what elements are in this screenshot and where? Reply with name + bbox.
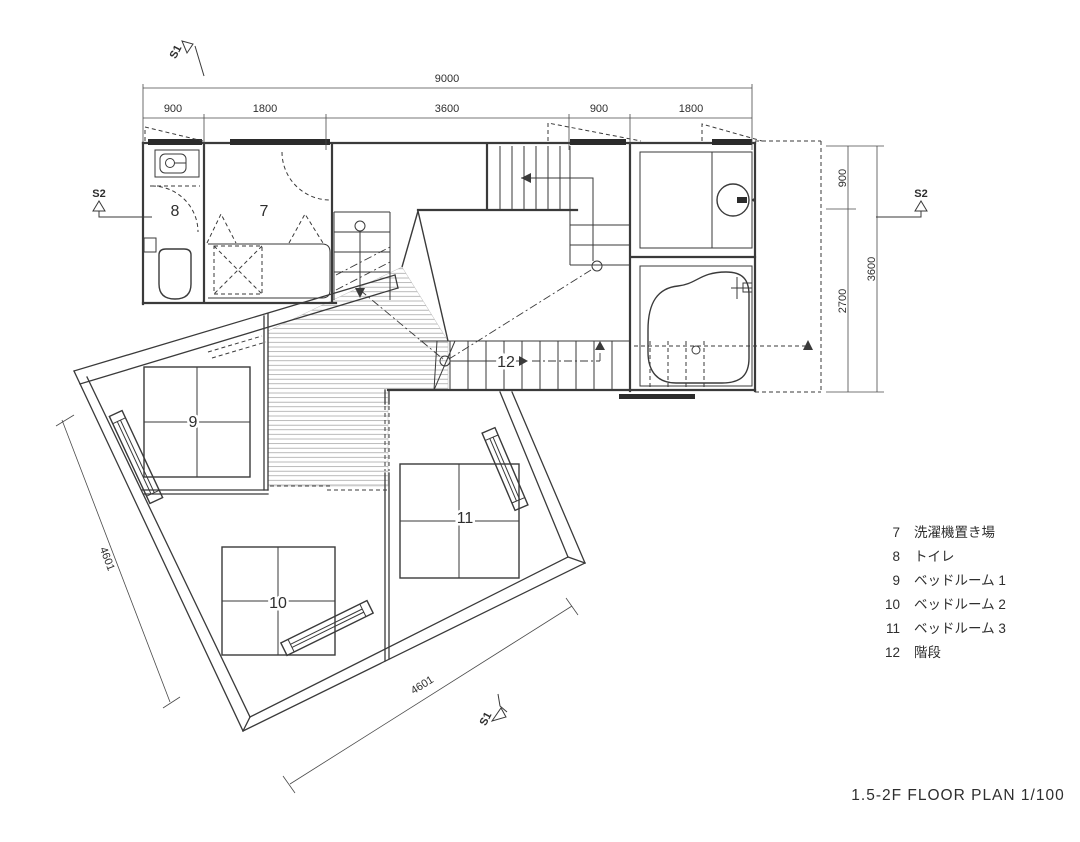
- counter: [208, 244, 330, 298]
- floor-plan-drawing: 7 8 9 10 11 12 9000 900 1800 3600 900 18…: [0, 0, 1080, 842]
- legend-label: 階段: [914, 645, 941, 660]
- dimension-bottom: 4601: [283, 598, 578, 793]
- s2-right-label: S2: [914, 188, 927, 200]
- dim-top-total: 9000: [435, 73, 459, 85]
- window-east: [482, 428, 528, 511]
- floor-plan-page: 7 8 9 10 11 12 9000 900 1800 3600 900 18…: [0, 0, 1080, 842]
- stair-up-arrow-small: [595, 341, 605, 350]
- bathroom: [640, 266, 752, 386]
- dim-bottom-4601: 4601: [409, 674, 436, 697]
- legend-number: 12: [885, 645, 900, 660]
- room-label-10: 10: [269, 595, 287, 612]
- legend-label: ベッドルーム 2: [914, 597, 1006, 612]
- section-marker-s2-right: S2: [876, 188, 928, 217]
- sink-faucet-icon: [166, 159, 175, 168]
- dimension-left: 4601: [56, 415, 180, 708]
- bathtub-drain: [692, 346, 700, 354]
- s2-left-label: S2: [92, 188, 105, 200]
- legend-number: 11: [886, 621, 900, 636]
- toilet-bowl: [159, 249, 191, 299]
- dim-top-seg3: 3600: [435, 103, 459, 115]
- door-swing-arc: [282, 152, 330, 200]
- folding-door-right: [289, 214, 323, 243]
- dim-left-4601: 4601: [97, 545, 117, 572]
- section-marker-s1-top: S1: [168, 41, 204, 76]
- dim-top-seg1: 900: [164, 103, 182, 115]
- vanity-outline: [640, 152, 752, 248]
- room-label-9: 9: [189, 414, 198, 431]
- legend-number: 10: [885, 597, 900, 612]
- legend: 7 洗濯機置き場 8 トイレ 9 ベッドルーム 1 10 ベッドルーム 2 11…: [885, 525, 1006, 660]
- stairs-upper: [500, 146, 630, 271]
- s1-top-label: S1: [168, 43, 185, 60]
- room-label-7: 7: [260, 203, 269, 220]
- legend-label: 洗濯機置き場: [914, 525, 995, 540]
- legend-number: 9: [892, 573, 900, 588]
- dim-right-3600: 3600: [866, 257, 878, 281]
- stair-direction-arrow: [519, 356, 528, 366]
- bath-outline: [640, 266, 752, 386]
- legend-label: トイレ: [914, 549, 955, 564]
- folding-door-left: [207, 214, 236, 243]
- legend-label: ベッドルーム 3: [914, 621, 1006, 636]
- window-south: [281, 601, 373, 656]
- section-marker-s1-bottom: S1: [478, 694, 507, 728]
- bathtub: [648, 272, 749, 383]
- washbasin-room: [640, 152, 756, 248]
- dim-top-seg2: 1800: [253, 103, 277, 115]
- dim-right-900: 900: [837, 169, 849, 187]
- toilet-room: [144, 150, 200, 299]
- stair-direction-arrow: [521, 173, 531, 183]
- room-label-8: 8: [171, 203, 180, 220]
- wall-stub: [144, 238, 156, 252]
- dim-top-seg5: 1800: [679, 103, 703, 115]
- basin-faucet-icon: [737, 197, 747, 203]
- s1-bottom-label: S1: [478, 710, 495, 727]
- dim-top-seg4: 900: [590, 103, 608, 115]
- room-label-12: 12: [497, 354, 515, 371]
- laundry-room: [207, 152, 330, 298]
- stair-up-arrow: [803, 340, 813, 350]
- plan-title: 1.5-2F FLOOR PLAN 1/100: [851, 787, 1064, 804]
- dim-right-2700: 2700: [837, 289, 849, 313]
- legend-label: ベッドルーム 1: [914, 573, 1006, 588]
- dimension-right: 900 2700 3600: [826, 146, 884, 392]
- dimension-top: 9000 900 1800 3600 900 1800: [143, 73, 752, 150]
- room-label-11: 11: [457, 510, 474, 527]
- legend-number: 8: [892, 549, 900, 564]
- legend-number: 7: [892, 525, 900, 540]
